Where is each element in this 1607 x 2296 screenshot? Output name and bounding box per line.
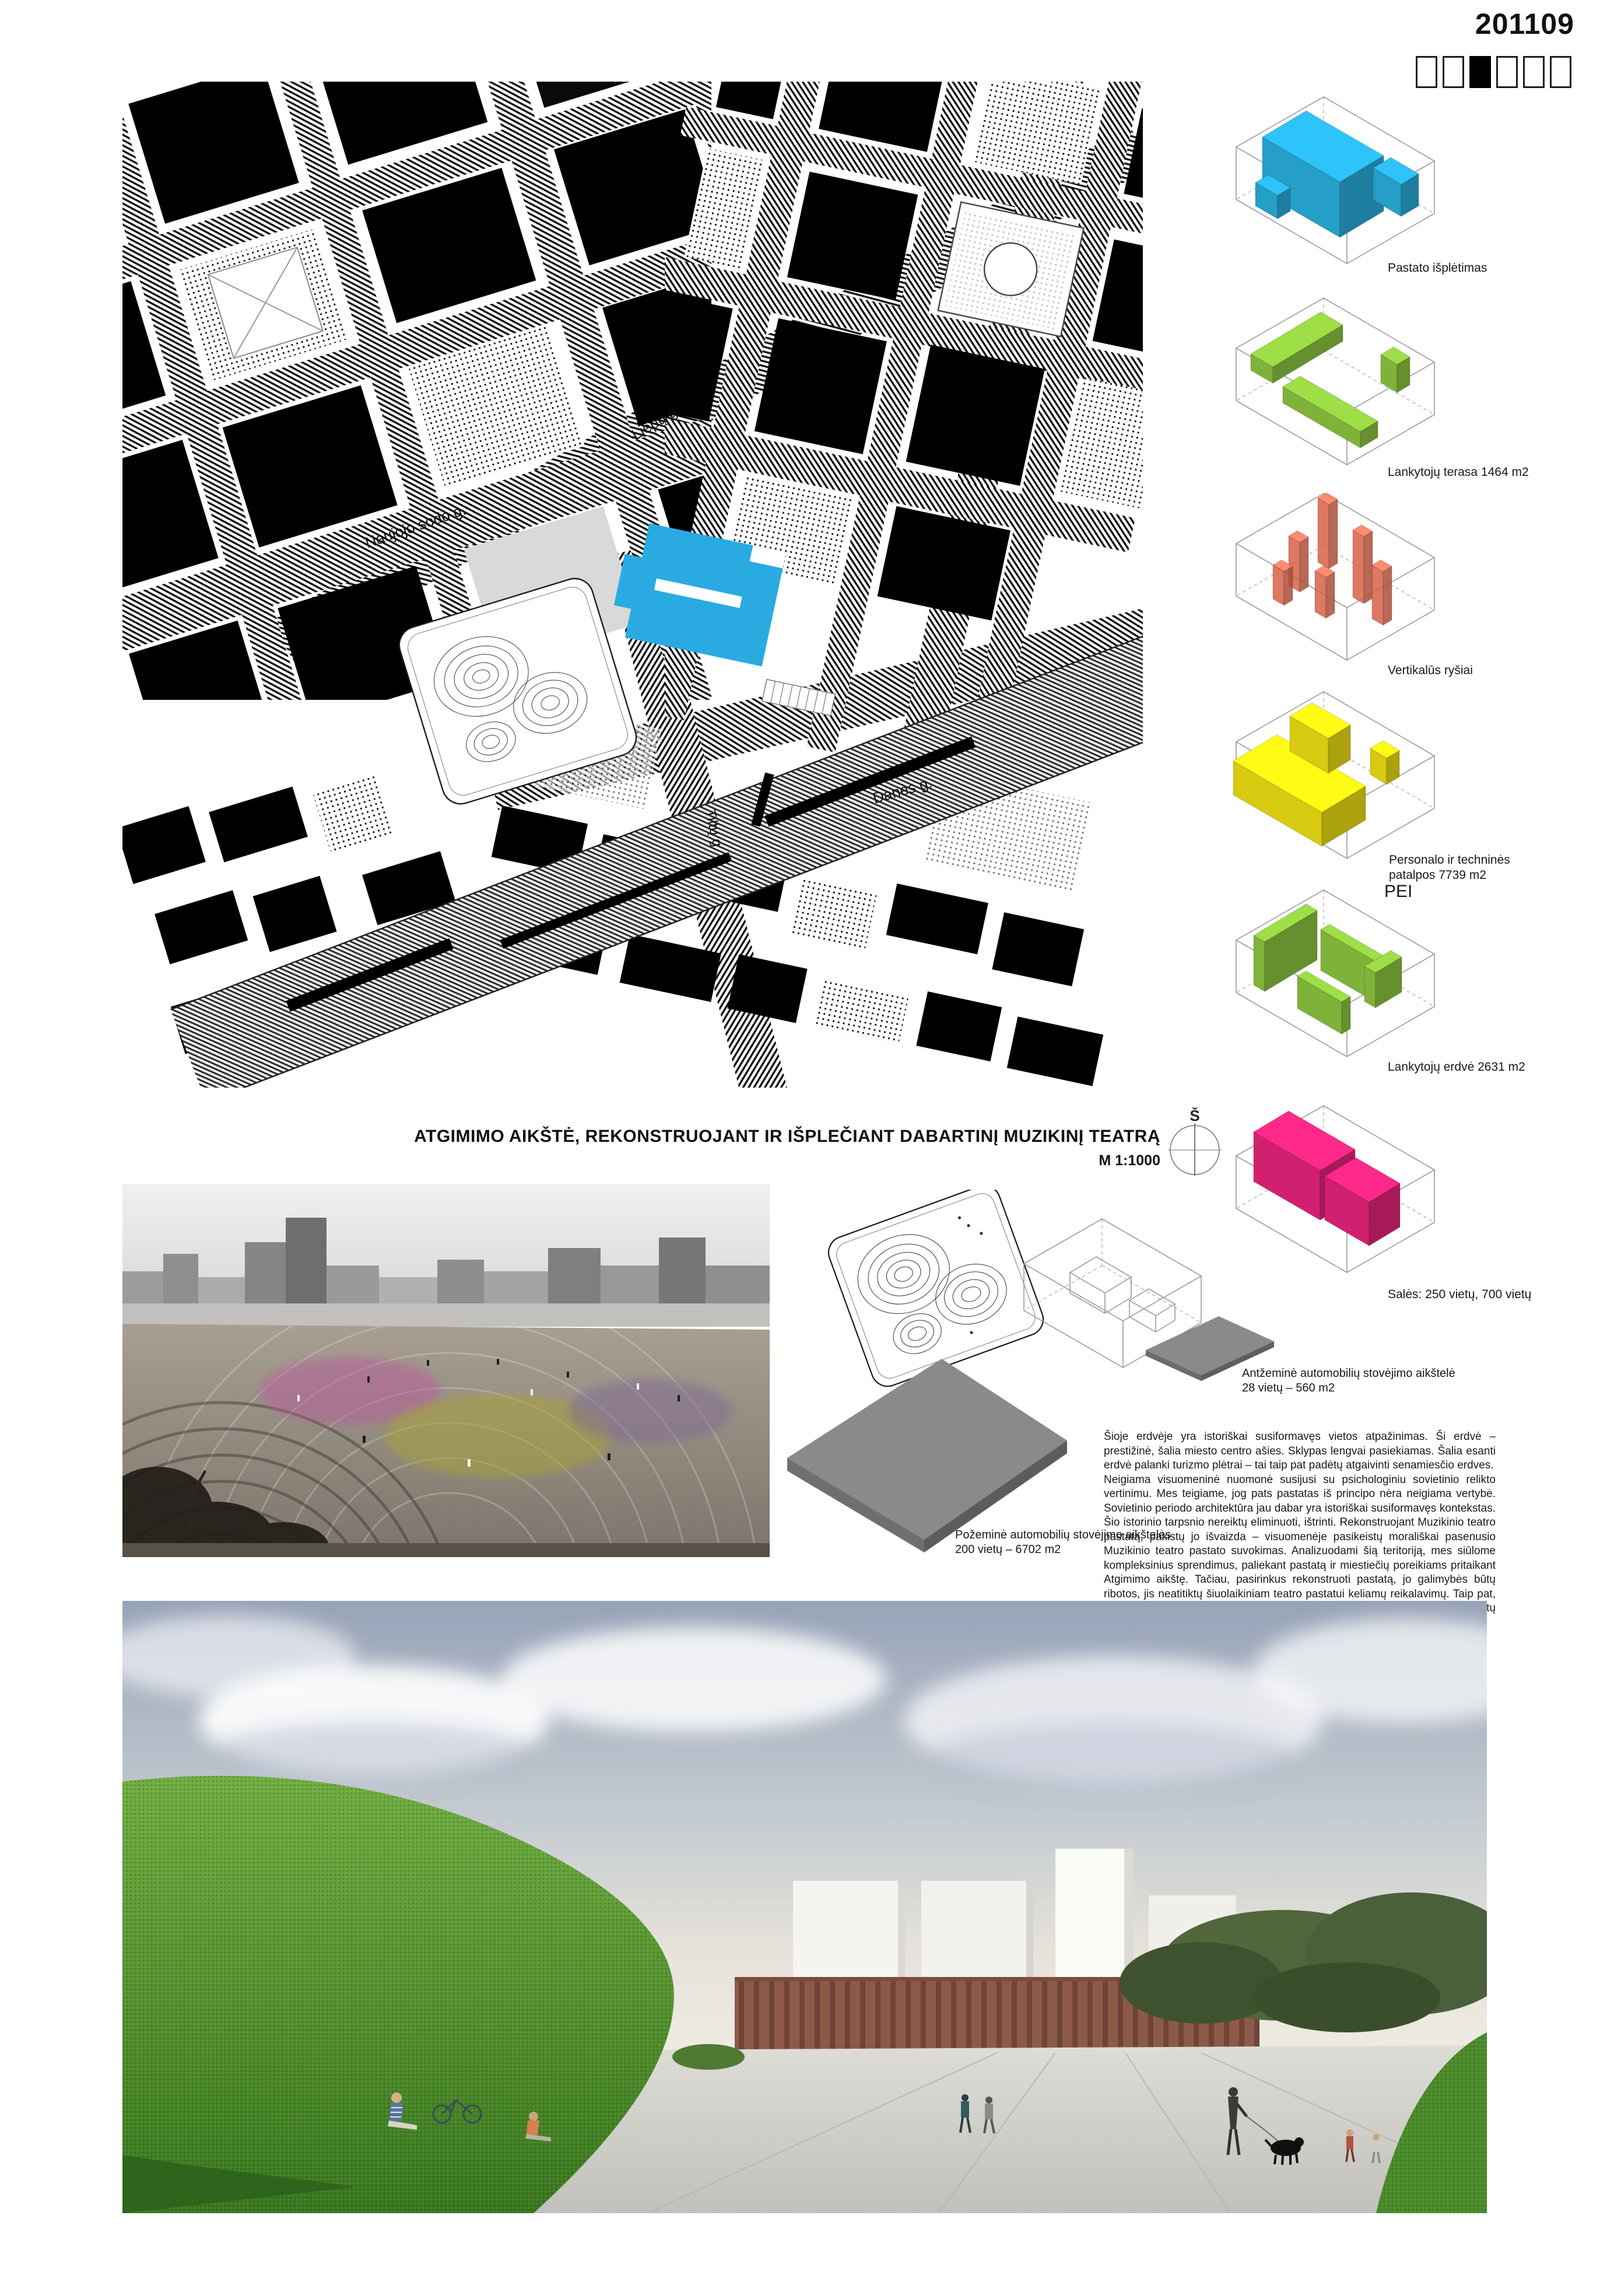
- diagram-halls: [1219, 1085, 1452, 1277]
- bush: [672, 2044, 745, 2070]
- color-blob-purple: [569, 1379, 732, 1443]
- surface-parking-line2: 28 vietų – 560 m2: [1242, 1382, 1335, 1394]
- north-arrow-icon: Š: [1164, 1107, 1225, 1176]
- diagram-label-building-expansion: Pastato išplėtimas: [1388, 261, 1487, 276]
- board-number: 201109: [1341, 7, 1574, 41]
- city-figure-ground-map: Naujojo sodo g. Liepų g. Danės g. Tiltų …: [122, 82, 1143, 1088]
- diagram-visitor-terrace: [1219, 277, 1452, 469]
- page-square-5: [1523, 56, 1545, 88]
- page-square-6: [1550, 56, 1571, 88]
- diagram-vertical-links: [1219, 472, 1452, 665]
- surface-parking-line1: Antžeminė automobilių stovėjimo aikštelė: [1242, 1367, 1455, 1380]
- north-letter: Š: [1190, 1107, 1199, 1124]
- title-block: ATGIMIMO AIKŠTĖ, REKONSTRUOJANT IR IŠPLE…: [350, 1127, 1160, 1169]
- staff-label-line1: Personalo ir techninės: [1389, 853, 1510, 867]
- presentation-board: 201109: [0, 0, 1607, 2296]
- diagram-label-halls: Salės: 250 vietų, 700 vietų: [1388, 1287, 1531, 1302]
- description-paragraph-1: Šioje erdvėje yra istoriškai susiformavę…: [1104, 1430, 1496, 1473]
- diagram-label-visitor-space: Lankytojų erdvė 2631 m2: [1388, 1060, 1525, 1075]
- scale-label: M 1:1000: [350, 1152, 1160, 1169]
- park-render: [122, 1601, 1487, 2213]
- foreground-step-shadow: [122, 1543, 770, 1557]
- page-square-3-active: [1469, 56, 1491, 88]
- underground-parking-plate: [776, 1338, 1079, 1555]
- underground-parking-line2: 200 vietų – 6702 m2: [955, 1543, 1061, 1556]
- page-square-4: [1496, 56, 1518, 88]
- diagram-visitor-space: [1219, 869, 1452, 1061]
- diagram-staff-technical: [1219, 671, 1452, 863]
- page-title: ATGIMIMO AIKŠTĖ, REKONSTRUOJANT IR IŠPLE…: [350, 1127, 1160, 1147]
- plaza-photomontage: [122, 1184, 770, 1557]
- project-description: Šioje erdvėje yra istoriškai susiformavę…: [1104, 1430, 1496, 1630]
- diagram-building-expansion: [1219, 76, 1452, 268]
- surface-parking-label: Antžeminė automobilių stovėjimo aikštelė…: [1242, 1366, 1493, 1396]
